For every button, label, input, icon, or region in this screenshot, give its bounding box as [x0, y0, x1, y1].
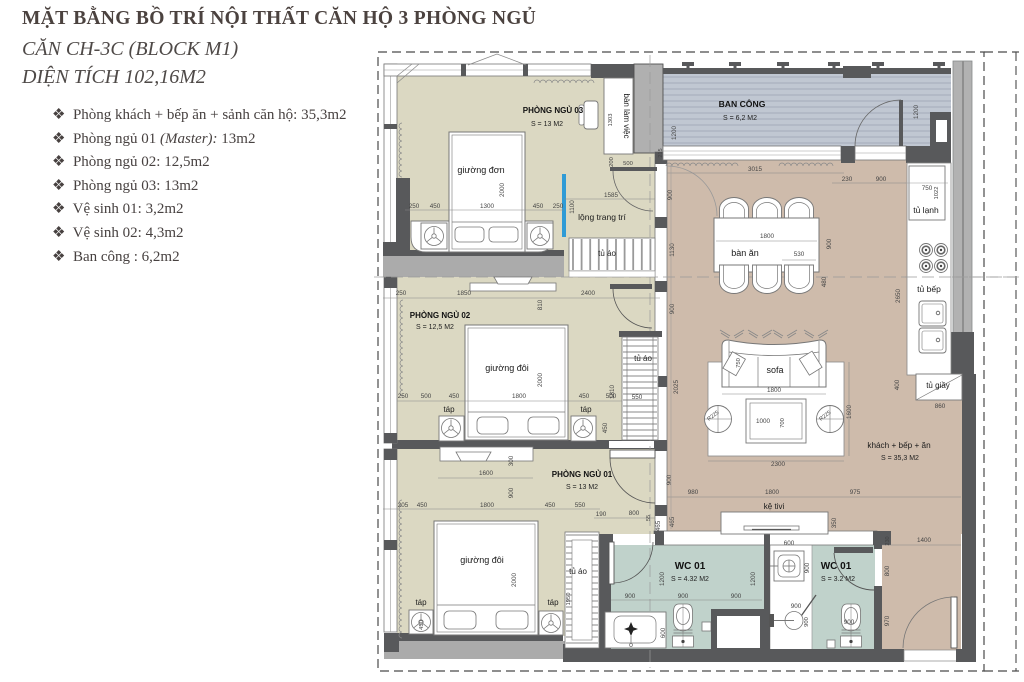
- svg-text:2025: 2025: [673, 380, 680, 395]
- svg-text:1100: 1100: [569, 200, 576, 214]
- svg-text:kệ tivi: kệ tivi: [764, 502, 785, 511]
- svg-text:táp: táp: [547, 598, 559, 607]
- svg-text:tủ bếp: tủ bếp: [917, 284, 941, 294]
- svg-text:250: 250: [553, 203, 564, 210]
- svg-text:1800: 1800: [512, 393, 527, 400]
- svg-text:1200: 1200: [659, 572, 666, 587]
- svg-text:450: 450: [602, 422, 609, 433]
- svg-text:250: 250: [409, 203, 420, 210]
- svg-text:PHÒNG NGỦ 03: PHÒNG NGỦ 03: [523, 106, 584, 115]
- svg-text:250: 250: [398, 393, 409, 400]
- svg-text:1200: 1200: [750, 572, 757, 587]
- svg-text:S = 13 M2: S = 13 M2: [531, 121, 563, 128]
- svg-text:600: 600: [660, 627, 667, 638]
- svg-text:900: 900: [844, 619, 855, 626]
- svg-text:1300: 1300: [480, 203, 495, 210]
- svg-text:900: 900: [667, 189, 674, 200]
- svg-text:táp: táp: [580, 405, 592, 414]
- svg-text:450: 450: [545, 502, 556, 509]
- svg-text:bàn làm việc: bàn làm việc: [622, 94, 631, 139]
- svg-text:1850: 1850: [457, 290, 472, 297]
- svg-text:1200: 1200: [913, 105, 920, 120]
- svg-text:450: 450: [449, 393, 460, 400]
- svg-text:900: 900: [791, 603, 802, 610]
- svg-text:1000: 1000: [756, 418, 771, 425]
- svg-text:900: 900: [876, 176, 887, 183]
- svg-text:500: 500: [421, 393, 432, 400]
- svg-text:600: 600: [784, 540, 795, 547]
- svg-text:190: 190: [596, 511, 607, 518]
- svg-text:980: 980: [688, 489, 699, 496]
- svg-text:800: 800: [629, 510, 640, 517]
- svg-text:900: 900: [731, 593, 742, 600]
- svg-text:1585: 1585: [604, 192, 619, 199]
- svg-text:1400: 1400: [917, 537, 932, 544]
- svg-text:giường đôi: giường đôi: [485, 363, 528, 373]
- svg-text:205: 205: [398, 502, 409, 509]
- svg-text:700: 700: [780, 418, 786, 428]
- svg-text:1022: 1022: [934, 187, 940, 200]
- svg-text:450: 450: [419, 620, 425, 630]
- svg-text:S = 35,3 M2: S = 35,3 M2: [881, 455, 919, 462]
- svg-text:970: 970: [884, 615, 891, 626]
- svg-text:250: 250: [396, 290, 407, 297]
- svg-text:lộng trang trí: lộng trang trí: [578, 212, 626, 222]
- svg-text:1800: 1800: [480, 502, 495, 509]
- svg-text:giường đơn: giường đơn: [457, 165, 504, 175]
- svg-text:S = 6,2 M2: S = 6,2 M2: [723, 115, 757, 122]
- svg-text:230: 230: [885, 536, 891, 545]
- svg-text:900: 900: [508, 487, 515, 498]
- svg-text:1600: 1600: [846, 405, 853, 420]
- svg-text:900: 900: [826, 238, 833, 249]
- svg-text:200: 200: [609, 157, 615, 167]
- svg-text:900: 900: [804, 562, 811, 573]
- svg-text:1303: 1303: [608, 114, 614, 127]
- svg-text:215: 215: [658, 148, 664, 157]
- svg-text:810: 810: [537, 299, 544, 310]
- svg-text:230: 230: [842, 176, 853, 183]
- svg-text:1800: 1800: [760, 233, 775, 240]
- svg-text:giường đôi: giường đôi: [460, 555, 503, 565]
- svg-text:300: 300: [508, 455, 515, 466]
- svg-text:1130: 1130: [669, 243, 676, 257]
- svg-text:450: 450: [417, 502, 428, 509]
- svg-text:2000: 2000: [537, 373, 544, 388]
- svg-text:1800: 1800: [767, 387, 782, 394]
- svg-text:tủ áo: tủ áo: [569, 567, 587, 576]
- svg-text:900: 900: [804, 617, 810, 627]
- svg-text:750: 750: [736, 358, 742, 368]
- svg-text:1800: 1800: [765, 489, 780, 496]
- svg-text:500: 500: [623, 161, 633, 167]
- svg-text:3015: 3015: [748, 166, 763, 173]
- svg-text:450: 450: [533, 203, 544, 210]
- svg-text:900: 900: [625, 593, 636, 600]
- svg-text:530: 530: [794, 251, 805, 258]
- svg-text:1810: 1810: [609, 385, 616, 400]
- svg-text:sofa: sofa: [766, 365, 783, 375]
- svg-text:táp: táp: [443, 405, 455, 414]
- svg-text:900: 900: [666, 474, 673, 485]
- svg-text:1950: 1950: [566, 593, 572, 606]
- svg-text:táp: táp: [415, 598, 427, 607]
- svg-text:450: 450: [579, 393, 590, 400]
- svg-text:1600: 1600: [479, 470, 494, 477]
- svg-text:860: 860: [935, 403, 946, 410]
- svg-text:2400: 2400: [581, 290, 596, 297]
- svg-text:55: 55: [646, 515, 652, 521]
- svg-text:400: 400: [894, 379, 901, 390]
- svg-text:1200: 1200: [671, 126, 678, 141]
- svg-text:550: 550: [632, 394, 643, 401]
- svg-text:S = 12,5 M2: S = 12,5 M2: [416, 324, 454, 331]
- svg-text:tủ áo: tủ áo: [598, 249, 616, 258]
- svg-text:900: 900: [669, 303, 676, 314]
- svg-text:465: 465: [655, 520, 662, 531]
- svg-text:tủ lạnh: tủ lạnh: [913, 205, 939, 215]
- svg-text:900: 900: [678, 593, 689, 600]
- svg-text:2000: 2000: [511, 573, 518, 588]
- svg-text:800: 800: [884, 565, 891, 576]
- svg-text:350: 350: [831, 517, 838, 528]
- svg-text:tủ giầy: tủ giầy: [926, 381, 950, 390]
- svg-text:750: 750: [922, 185, 933, 192]
- svg-text:465: 465: [669, 516, 676, 527]
- svg-text:2300: 2300: [771, 461, 786, 468]
- svg-text:480: 480: [821, 276, 828, 287]
- svg-text:tủ áo: tủ áo: [634, 354, 652, 363]
- svg-text:2000: 2000: [499, 183, 506, 198]
- svg-text:975: 975: [850, 489, 861, 496]
- svg-text:S = 13 M2: S = 13 M2: [566, 484, 598, 491]
- svg-text:BAN CÔNG: BAN CÔNG: [719, 98, 766, 109]
- svg-text:WC 01: WC 01: [675, 561, 706, 572]
- svg-text:550: 550: [575, 502, 586, 509]
- svg-text:450: 450: [430, 203, 441, 210]
- svg-text:khách + bếp + ăn: khách + bếp + ăn: [867, 441, 931, 450]
- svg-text:S = 4.32 M2: S = 4.32 M2: [671, 576, 709, 583]
- svg-text:bàn ăn: bàn ăn: [731, 248, 759, 258]
- svg-text:PHÒNG NGỦ 02: PHÒNG NGỦ 02: [410, 311, 471, 320]
- svg-text:2650: 2650: [895, 289, 902, 304]
- svg-text:PHÒNG NGỦ 01: PHÒNG NGỦ 01: [552, 470, 613, 479]
